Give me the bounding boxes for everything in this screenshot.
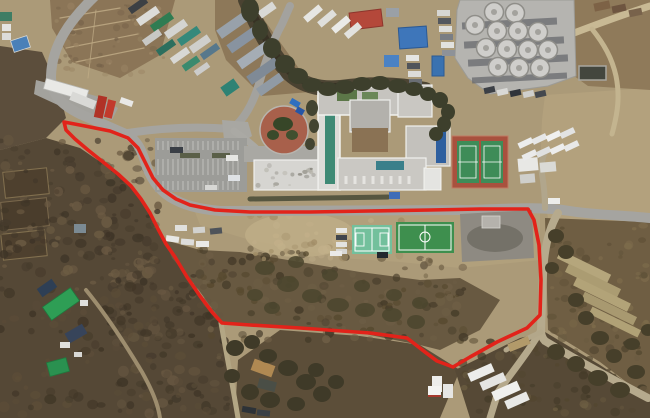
plaza-trees-3 bbox=[267, 130, 279, 140]
blue-pool bbox=[432, 56, 444, 76]
lot-car-3 bbox=[228, 175, 240, 181]
dirt-lot-car-5 bbox=[193, 227, 205, 234]
white-truck-bottom-2 bbox=[443, 384, 453, 398]
hedge-south-of-building bbox=[250, 197, 388, 199]
pad-shed bbox=[482, 216, 500, 228]
plaza-trees-1 bbox=[273, 117, 293, 131]
lot-car-4 bbox=[205, 185, 217, 190]
gray-utility-hut bbox=[386, 8, 399, 17]
dirt-lot-car-6 bbox=[175, 225, 187, 231]
car-col-2 bbox=[407, 63, 420, 69]
bldg-teal-bottom bbox=[376, 161, 404, 170]
white-car-field-edge bbox=[330, 251, 342, 256]
dirt-lot-car-4 bbox=[210, 227, 223, 234]
white-kiosk bbox=[428, 386, 441, 395]
white-truck-left-2 bbox=[2, 33, 11, 40]
blue-kiosk bbox=[389, 192, 400, 199]
tank-car-1 bbox=[437, 10, 450, 16]
bldg-courtyard bbox=[352, 128, 388, 152]
white-truck-left-1 bbox=[2, 24, 11, 31]
tank-car-6 bbox=[442, 50, 455, 56]
farm-white-2 bbox=[60, 342, 70, 348]
blue-shed bbox=[384, 55, 399, 67]
farm-white-1 bbox=[80, 300, 88, 306]
gray-shack-hill bbox=[74, 224, 86, 233]
bldg-tower bbox=[424, 168, 441, 190]
court-car-1 bbox=[336, 228, 347, 233]
dirt-lot-car-2 bbox=[181, 239, 194, 246]
road-tennis-stub bbox=[542, 152, 545, 208]
court-car-3 bbox=[336, 242, 347, 247]
aerial-image bbox=[0, 0, 650, 418]
tank-car-3 bbox=[439, 26, 452, 32]
lot-car-1 bbox=[170, 147, 183, 153]
white-shed-3 bbox=[520, 173, 536, 183]
car-road-right bbox=[548, 198, 560, 204]
white-shed-1 bbox=[517, 157, 538, 172]
dirt-lot-car-3 bbox=[196, 241, 209, 247]
dark-car-futsal bbox=[377, 252, 388, 258]
car-col-3 bbox=[408, 71, 421, 77]
court-car-2 bbox=[336, 235, 347, 240]
plaza-trees-2 bbox=[286, 130, 298, 140]
teal-house-topleft bbox=[0, 12, 12, 21]
tank-car-2 bbox=[438, 18, 451, 24]
white-shed-2 bbox=[540, 161, 557, 172]
map-canvas bbox=[0, 0, 650, 418]
dark-reservoir bbox=[579, 66, 606, 80]
tank-car-5 bbox=[441, 42, 454, 48]
blue-warehouse bbox=[398, 26, 427, 49]
bldg-center-block bbox=[350, 100, 390, 132]
farm-white-3 bbox=[74, 352, 82, 357]
bldg-atrium-teal bbox=[325, 114, 335, 184]
car-col-1 bbox=[406, 55, 419, 61]
lot-car-2 bbox=[226, 155, 238, 161]
tank-car-4 bbox=[440, 34, 453, 40]
parking-island-1 bbox=[180, 153, 200, 158]
